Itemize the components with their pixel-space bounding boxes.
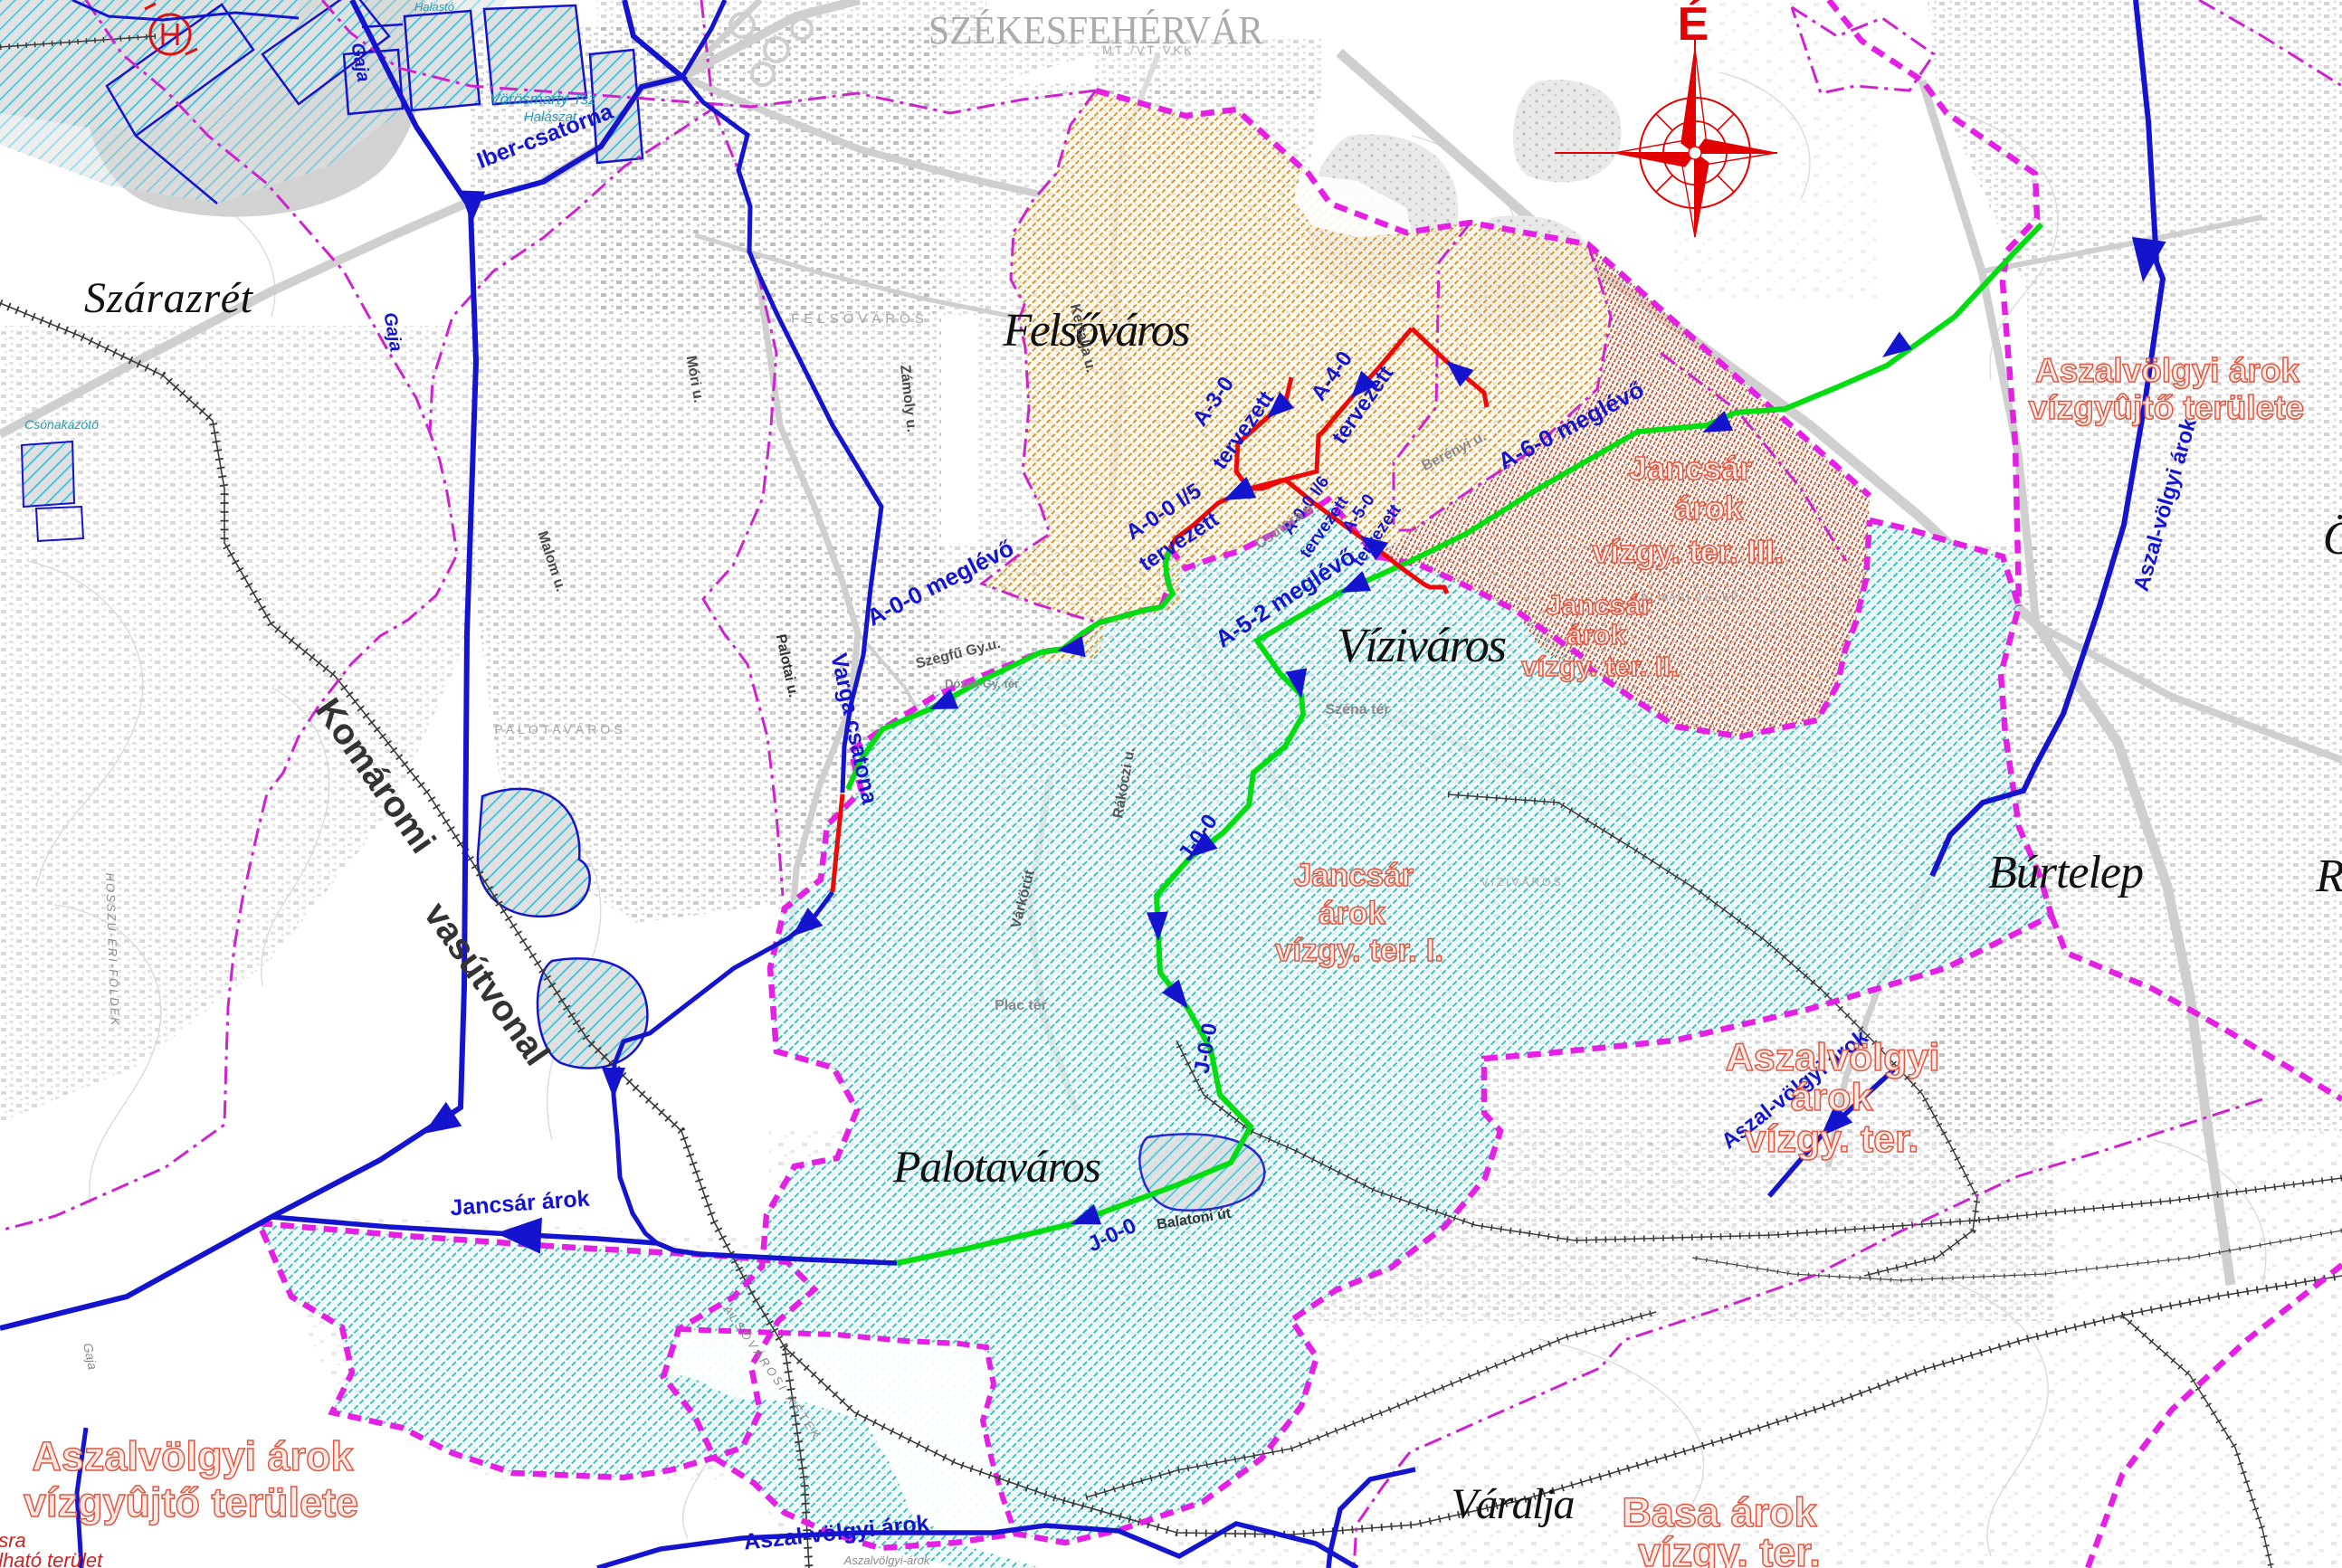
svg-text:árok: árok (1674, 489, 1744, 527)
svg-text:Halászat: Halászat (524, 109, 577, 125)
svg-text:árok: árok (1566, 619, 1626, 651)
svg-text:árok: árok (1791, 1076, 1873, 1119)
svg-text:Széna tér: Széna tér (1325, 702, 1389, 717)
svg-text:MT /VT VKK: MT /VT VKK (1102, 43, 1195, 57)
svg-text:vízgy. ter.: vízgy. ter. (1745, 1117, 1919, 1161)
svg-text:ALMÁSI-TELEP: ALMÁSI-TELEP (1641, 590, 1740, 603)
svg-text:Búrtelep: Búrtelep (1988, 847, 2144, 898)
svg-text:Dózsa Gy. tér: Dózsa Gy. tér (945, 677, 1019, 690)
svg-text:Víziváros: Víziváros (1337, 618, 1507, 672)
svg-text:Halastó: Halastó (414, 0, 454, 14)
svg-text:Rác: Rác (2315, 851, 2342, 902)
svg-text:vízgy. ter. I.: vízgy. ter. I. (1275, 933, 1443, 968)
svg-text:FELSŐVÁROS: FELSŐVÁROS (791, 311, 928, 327)
svg-text:..lható terület: ..lható terület (0, 1549, 103, 1568)
svg-text:Szárazrét: Szárazrét (84, 274, 254, 322)
svg-text:Palotaváros: Palotaváros (892, 1141, 1101, 1192)
svg-text:SZÉKESFEHÉRVÁR: SZÉKESFEHÉRVÁR (928, 8, 1264, 52)
svg-text:PALOTAVÁROS: PALOTAVÁROS (494, 722, 625, 736)
svg-text:Felsőváros: Felsőváros (1003, 305, 1191, 356)
svg-text:Váralja: Váralja (1452, 1480, 1576, 1528)
svg-text:vízgyûjtő területe: vízgyûjtő területe (2029, 389, 2304, 426)
svg-text:Aszalvölgyi árok: Aszalvölgyi árok (2035, 352, 2299, 389)
svg-text:Csónakázótó: Csónakázótó (24, 417, 99, 432)
svg-text:Aszalvölgyi árok: Aszalvölgyi árok (32, 1433, 354, 1479)
svg-text:É: É (1678, 0, 1709, 51)
svg-text:Jancsár: Jancsár (1629, 450, 1752, 487)
svg-text:vízgy. ter.: vízgy. ter. (1638, 1529, 1821, 1568)
svg-text:VIZIVÁROS: VIZIVÁROS (1480, 875, 1563, 889)
svg-text:Aszalvölgyi: Aszalvölgyi (1726, 1036, 1940, 1079)
svg-text:Aszalvölgyi-árok: Aszalvölgyi-árok (843, 1554, 931, 1567)
svg-text:Plac tér: Plac tér (995, 998, 1047, 1013)
svg-text:árok: árok (1319, 896, 1385, 931)
svg-text:vízgy. ter. II.: vízgy. ter. II. (1521, 651, 1678, 682)
svg-text:vízgy. ter. III.: vízgy. ter. III. (1592, 533, 1783, 570)
svg-text:Jancsár: Jancsár (1546, 589, 1652, 621)
svg-text:Ö: Ö (2323, 513, 2342, 565)
svg-text:Vörösmarty Tsz: Vörösmarty Tsz (490, 90, 596, 108)
svg-text:vízgyûjtő területe: vízgyûjtő területe (24, 1479, 358, 1525)
svg-text:Jancsár: Jancsár (1294, 858, 1414, 893)
